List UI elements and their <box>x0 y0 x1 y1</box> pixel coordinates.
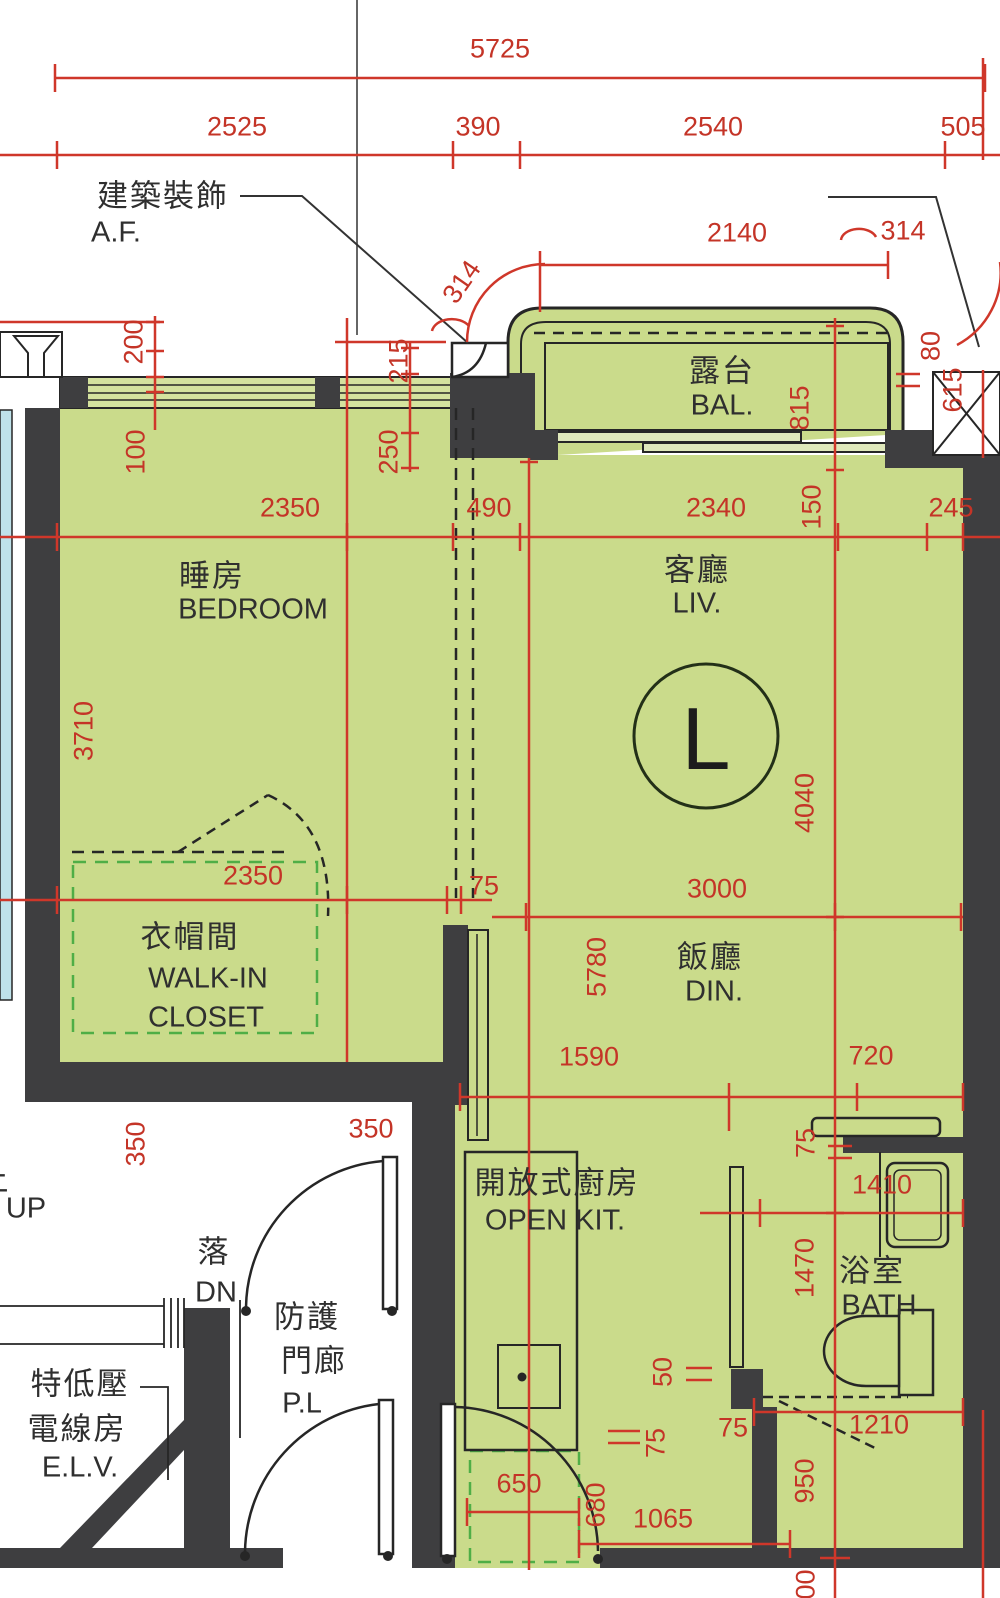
dim-1065: 1065 <box>633 1506 693 1533</box>
dim-200: 200 <box>121 319 148 364</box>
dim-2350-bedroom: 2350 <box>260 495 320 522</box>
dim-490: 490 <box>466 495 511 522</box>
dim-314-right: 314 <box>880 218 925 245</box>
dim-350-right: 350 <box>348 1116 393 1143</box>
dim-2350-closet: 2350 <box>223 863 283 890</box>
dim-314-left: 314 <box>438 256 486 308</box>
dim-720: 720 <box>848 1043 893 1070</box>
label-elv-en: E.L.V. <box>42 1454 118 1483</box>
dim-75-bath-top: 75 <box>793 1128 820 1158</box>
label-bedroom-zh: 睡房 <box>179 561 245 592</box>
label-kitchen-en: OPEN KIT. <box>485 1207 625 1236</box>
dim-815: 815 <box>787 385 814 430</box>
dim-75-bathwall: 75 <box>718 1415 748 1442</box>
floor-plan: 5725252539025405052140314314215200100250… <box>0 0 1000 1598</box>
label-af-zh: 建築裝飾 <box>97 181 229 212</box>
label-liv-en: LIV. <box>673 590 722 619</box>
dim-150: 150 <box>799 484 826 529</box>
dim-215: 215 <box>386 338 413 383</box>
label-closet-en1: WALK-IN <box>148 965 268 994</box>
dim-100-top: 100 <box>123 429 150 474</box>
dim-680: 680 <box>583 1482 610 1527</box>
dim-50: 50 <box>650 1357 677 1387</box>
dim-650: 650 <box>496 1471 541 1498</box>
dim-245: 245 <box>928 495 973 522</box>
dim-5725: 5725 <box>470 36 530 63</box>
dim-390: 390 <box>455 114 500 141</box>
label-bal-zh: 露台 <box>689 356 755 387</box>
dim-2540: 2540 <box>683 114 743 141</box>
label-up: UP <box>6 1195 46 1224</box>
label-af-en: A.F. <box>91 219 141 248</box>
label-pl-zh2: 門廊 <box>281 1346 347 1377</box>
label-bal-en: BAL. <box>691 392 754 421</box>
label-dn-en: DN <box>195 1279 237 1308</box>
dim-4040: 4040 <box>792 773 819 833</box>
dim-1410: 1410 <box>852 1172 912 1199</box>
label-up-partial: 上 <box>0 1165 11 1196</box>
label-elv-zh2: 電線房 <box>28 1414 127 1445</box>
dim-5780: 5780 <box>584 937 611 997</box>
dim-1210: 1210 <box>849 1412 909 1439</box>
label-dn-zh: 落 <box>198 1237 231 1268</box>
dim-3710: 3710 <box>71 701 98 761</box>
label-unit-circle: L <box>682 695 731 783</box>
dim-1590: 1590 <box>559 1044 619 1071</box>
label-din-en: DIN. <box>685 978 743 1007</box>
dim-75-door: 75 <box>643 1428 670 1458</box>
label-bath-zh: 浴室 <box>839 1256 905 1287</box>
dim-2340: 2340 <box>686 495 746 522</box>
dim-350-left: 350 <box>123 1121 150 1166</box>
labels-layer: 5725252539025405052140314314215200100250… <box>0 0 1000 1598</box>
dim-2140: 2140 <box>707 220 767 247</box>
dim-2525: 2525 <box>207 114 267 141</box>
label-pl-en: P.L <box>282 1390 322 1419</box>
dim-1470: 1470 <box>792 1238 819 1298</box>
dim-3000: 3000 <box>687 876 747 903</box>
label-bedroom-en: BEDROOM <box>178 596 328 625</box>
dim-100-bottom: 100 <box>793 1569 820 1598</box>
label-bath-en: BATH <box>841 1292 916 1321</box>
label-pl-zh1: 防護 <box>274 1302 340 1333</box>
dim-615: 615 <box>940 367 967 412</box>
label-closet-zh: 衣帽間 <box>141 922 240 953</box>
label-liv-zh: 客廳 <box>664 555 730 586</box>
dim-80: 80 <box>918 331 945 361</box>
label-closet-en2: CLOSET <box>148 1004 264 1033</box>
dim-950: 950 <box>792 1458 819 1503</box>
dim-505: 505 <box>940 114 985 141</box>
label-kitchen-zh: 開放式廚房 <box>475 1168 640 1199</box>
label-elv-zh1: 特低壓 <box>31 1369 130 1400</box>
dim-75-closet: 75 <box>469 873 499 900</box>
label-din-zh: 飯廳 <box>677 942 743 973</box>
dim-250: 250 <box>376 429 403 474</box>
